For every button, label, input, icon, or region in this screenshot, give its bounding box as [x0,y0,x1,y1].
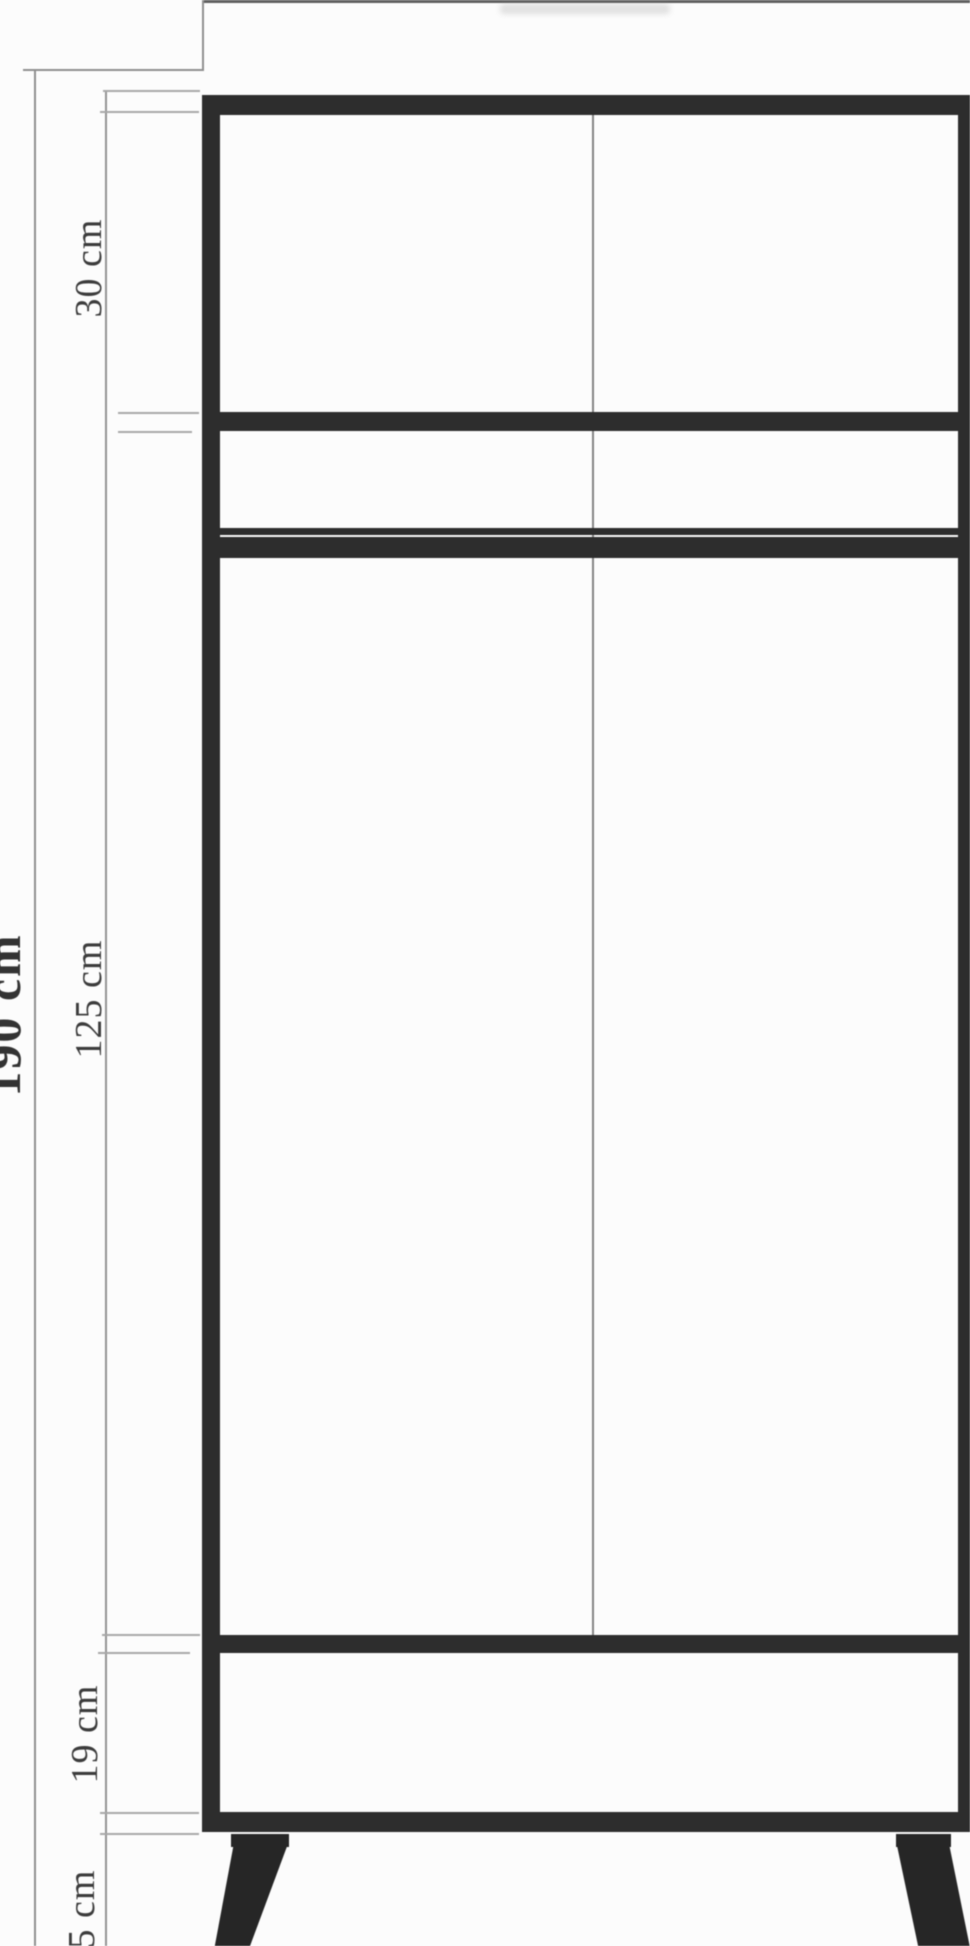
tick-top-compartment-start [100,111,199,113]
total-height-extension-line-top [23,69,203,71]
right-leg [895,1847,970,1946]
dim-label-total-height: 190 cm [0,933,28,1096]
cropped-width-label-remnant [500,4,670,14]
wardrobe-right-side-panel [958,95,970,1832]
total-height-dimension-line [34,71,36,1946]
door-divider-line [592,115,594,1635]
hanger-rail-lower-bar [220,537,970,558]
tick-drawer-top-a [102,1634,200,1636]
right-leg-mount-cap [896,1834,951,1847]
dim-label-middle-compartment: 125 cm [70,940,108,1059]
tick-base-top [100,1812,199,1814]
top-width-dimension-line [204,0,970,3]
dim-label-drawer-compartment: 19 cm [66,1685,104,1784]
top-shelf-band [220,412,970,431]
wardrobe-dimension-diagram: 190 cm 30 cm 125 cm 19 cm 5 cm [0,0,970,1946]
dim-label-legs: 5 cm [63,1870,101,1946]
hanger-rail-upper-bar [220,528,970,535]
drawer-top-band [219,1635,970,1653]
left-leg-mount-cap [231,1834,289,1847]
base-plinth-band [202,1812,970,1832]
tick-shelf-bottom [118,431,192,433]
tick-shelf-top [118,412,199,414]
tick-legs-top [100,1833,199,1835]
tick-drawer-top-b [98,1652,190,1654]
tick-cabinet-top [103,90,200,92]
top-width-extension-line [202,0,204,71]
diagram-artwork: 190 cm 30 cm 125 cm 19 cm 5 cm [0,0,970,1946]
wardrobe-left-side-panel [202,95,220,1832]
dim-label-top-compartment: 30 cm [70,219,108,318]
left-leg [210,1847,290,1946]
wardrobe-top-panel [202,95,970,115]
